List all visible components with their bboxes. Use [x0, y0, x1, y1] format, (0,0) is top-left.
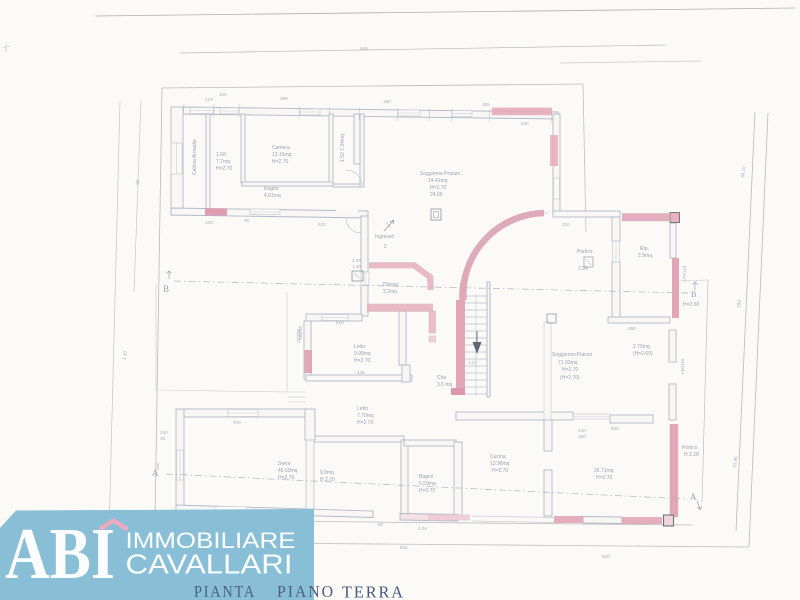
svg-text:Letto: Letto — [354, 344, 365, 350]
svg-text:445: 445 — [357, 370, 365, 375]
svg-text:H=2.70: H=2.70 — [278, 475, 294, 481]
svg-text:140: 140 — [160, 430, 168, 435]
svg-text:14.41mq: 14.41mq — [428, 178, 448, 184]
svg-text:100: 100 — [205, 220, 213, 225]
svg-text:310: 310 — [562, 222, 570, 227]
svg-text:290: 290 — [736, 299, 742, 308]
svg-text:13.16mq: 13.16mq — [272, 152, 292, 158]
svg-text:820: 820 — [336, 320, 344, 325]
svg-text:2.40: 2.40 — [352, 258, 361, 263]
svg-text:B: B — [163, 284, 169, 294]
svg-text:9.9mq: 9.9mq — [320, 470, 334, 476]
svg-text:H=2.70: H=2.70 — [596, 475, 612, 481]
svg-text:150/90: 150/90 — [296, 329, 301, 343]
svg-text:H=2.70: H=2.70 — [357, 420, 373, 426]
svg-text:Camera: Camera — [272, 145, 290, 151]
svg-text:700: 700 — [233, 420, 241, 425]
svg-text:1.50 7.34mq: 1.50 7.34mq — [340, 134, 346, 162]
svg-text:210: 210 — [205, 97, 213, 102]
svg-text:540: 540 — [521, 121, 529, 126]
svg-text:H=2.70: H=2.70 — [419, 488, 435, 494]
svg-text:5.59mq: 5.59mq — [419, 481, 436, 487]
svg-text:180: 180 — [383, 99, 391, 104]
svg-text:1.10: 1.10 — [122, 350, 127, 360]
svg-text:1.24: 1.24 — [468, 360, 477, 365]
svg-text:90: 90 — [378, 522, 384, 527]
svg-text:Portico: Portico — [577, 249, 593, 255]
svg-text:24.05: 24.05 — [430, 192, 443, 198]
svg-text:H=2.70: H=2.70 — [272, 159, 288, 165]
svg-text:9.98mq: 9.98mq — [354, 351, 371, 357]
svg-text:602: 602 — [400, 545, 408, 550]
svg-text:600: 600 — [611, 426, 619, 431]
svg-text:Cabina Armadio: Cabina Armadio — [192, 139, 198, 175]
svg-text:ABI: ABI — [5, 513, 115, 594]
svg-text:540: 540 — [360, 46, 368, 51]
svg-text:Cha: Cha — [437, 375, 446, 381]
svg-text:H=2.70: H=2.70 — [354, 358, 370, 364]
svg-text:390: 390 — [280, 96, 288, 101]
svg-text:175/110: 175/110 — [682, 265, 687, 282]
svg-text:485: 485 — [482, 102, 490, 107]
svg-text:26.71mq: 26.71mq — [594, 468, 614, 474]
svg-text:4.04: 4.04 — [418, 526, 427, 531]
svg-text:280: 280 — [578, 434, 586, 439]
svg-text:H=2.70: H=2.70 — [562, 367, 578, 373]
svg-text:420: 420 — [318, 222, 326, 227]
svg-text:H=2.60: H=2.60 — [683, 302, 699, 308]
svg-text:(H=2.70): (H=2.70) — [560, 375, 580, 381]
svg-text:PIANTA: PIANTA — [194, 582, 256, 600]
svg-text:145/110: 145/110 — [680, 358, 685, 375]
svg-text:1.60: 1.60 — [216, 152, 226, 158]
svg-text:140: 140 — [578, 428, 586, 433]
svg-text:3.5 mq: 3.5 mq — [437, 382, 453, 388]
svg-text:95: 95 — [244, 218, 250, 223]
svg-text:2: 2 — [384, 244, 387, 250]
svg-text:(H=2.60): (H=2.60) — [633, 351, 653, 357]
svg-text:600: 600 — [602, 554, 610, 559]
svg-text:Soggiorno-Pranzo: Soggiorno-Pranzo — [552, 352, 593, 358]
svg-text:Letto: Letto — [357, 406, 368, 412]
svg-text:Ingresso: Ingresso — [375, 234, 394, 240]
svg-text:71.93mq: 71.93mq — [558, 360, 578, 366]
svg-text:4.91mq: 4.91mq — [264, 193, 281, 199]
svg-text:Rip.: Rip. — [640, 246, 649, 252]
svg-text:H 2.70: H 2.70 — [320, 477, 335, 483]
svg-text:Disimp.: Disimp. — [383, 282, 400, 288]
svg-text:35: 35 — [160, 436, 166, 441]
svg-text:PIANO: PIANO — [277, 582, 335, 600]
svg-text:30: 30 — [135, 179, 140, 185]
svg-text:H=2.70: H=2.70 — [430, 185, 446, 191]
svg-text:H=2.70: H=2.70 — [216, 166, 232, 172]
svg-text:A: A — [690, 492, 697, 502]
svg-text:290: 290 — [628, 326, 636, 331]
svg-text:45.60mq: 45.60mq — [278, 468, 298, 474]
svg-text:Serra: Serra — [278, 461, 290, 467]
svg-text:2.70mq: 2.70mq — [633, 344, 650, 350]
svg-text:Bagno: Bagno — [419, 474, 434, 480]
svg-text:Soggiorno Pranzo: Soggiorno Pranzo — [420, 171, 460, 177]
svg-text:CAVALLARI: CAVALLARI — [126, 549, 293, 580]
svg-text:1.30: 1.30 — [352, 264, 361, 269]
svg-text:TERRA: TERRA — [342, 583, 405, 600]
svg-text:B: B — [691, 290, 696, 299]
svg-text:7.70mq: 7.70mq — [357, 413, 374, 419]
svg-text:7.7mq: 7.7mq — [216, 159, 230, 165]
svg-text:3.2mq: 3.2mq — [383, 289, 397, 295]
svg-text:100: 100 — [219, 92, 227, 97]
svg-text:2.9mq: 2.9mq — [638, 253, 652, 259]
svg-text:Bagno: Bagno — [264, 186, 279, 192]
svg-text:13.96mq: 13.96mq — [490, 461, 510, 467]
svg-text:Portico: Portico — [682, 445, 698, 451]
svg-text:H=2.70: H=2.70 — [492, 468, 508, 474]
svg-text:Cucina: Cucina — [490, 454, 506, 460]
svg-text:7.94: 7.94 — [578, 266, 588, 272]
svg-text:H 2.20: H 2.20 — [684, 452, 699, 458]
